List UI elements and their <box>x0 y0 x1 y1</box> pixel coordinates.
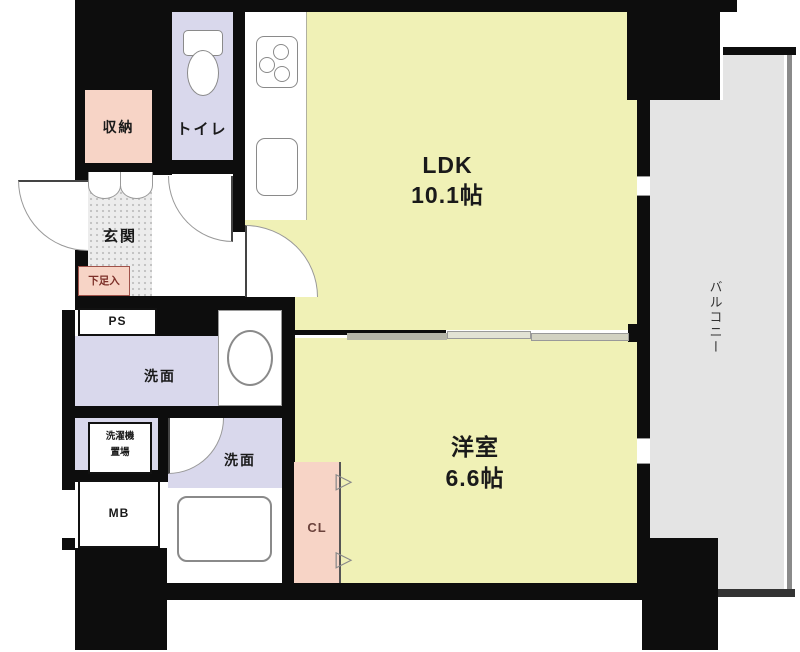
closet-folding-door-icon: ▷ <box>334 546 354 572</box>
wall-right <box>637 12 650 584</box>
western-room-label: 洋室 <box>405 432 545 462</box>
sliding-door-panel <box>447 331 531 339</box>
ldk-size-label: 10.1帖 <box>375 180 520 210</box>
balcony-area-upper <box>723 55 784 100</box>
sliding-door-panel <box>531 333 629 341</box>
window-ldk <box>637 176 650 196</box>
bathtub-icon <box>177 496 272 562</box>
wall-bottomleft-block <box>75 548 167 650</box>
ps-label: PS <box>78 312 157 332</box>
cl-label: CL <box>294 518 340 538</box>
toilet-bowl-icon <box>187 50 219 96</box>
storage-label: 収納 <box>85 117 152 137</box>
entry-door-arc <box>18 180 88 251</box>
mb-opening <box>62 490 75 538</box>
stove-burner-icon <box>274 66 290 82</box>
balcony-rail-bottom <box>718 589 795 597</box>
stove-burner-icon <box>259 57 275 73</box>
storage-door-arc <box>88 172 121 199</box>
balcony-top-wall <box>723 47 796 55</box>
wall-top <box>75 0 737 12</box>
wall-kitchen-left <box>233 12 245 232</box>
western-room-size-label: 6.6帖 <box>405 463 545 493</box>
balcony-rail-right <box>787 55 792 595</box>
washing-machine-label-line2: 置場 <box>89 446 151 460</box>
closet-folding-door-icon: ▷ <box>334 468 354 494</box>
window-western <box>637 438 650 464</box>
ldk-label: LDK <box>375 150 520 180</box>
floorplan: ▷ ▷ LDK 10.1帖 洋室 6.6帖 バルコニー トイレ 玄関 収納 下足… <box>0 0 800 652</box>
entrance-label: 玄関 <box>86 226 154 248</box>
stove-burner-icon <box>273 44 289 60</box>
washing-machine-label-line1: 洗濯機 <box>89 430 151 444</box>
wall-washroom-divider <box>75 406 282 418</box>
sliding-door-panel <box>347 333 447 340</box>
wall-toilet-bottom <box>160 160 245 174</box>
balcony-label: バルコニー <box>701 262 727 372</box>
bath-washroom-label: 洗面 <box>200 450 280 470</box>
kitchen-sink-icon <box>256 138 298 196</box>
wall-bottom <box>167 583 643 600</box>
wall-ps-block <box>157 310 218 336</box>
wall-bottomright-block <box>642 538 718 650</box>
washroom-label: 洗面 <box>120 366 200 386</box>
toilet-label: トイレ <box>170 120 234 140</box>
mb-label: MB <box>78 504 160 524</box>
storage-door-arc <box>120 172 153 199</box>
shoe-cabinet-label: 下足入 <box>78 272 130 290</box>
washbasin-icon <box>227 330 273 386</box>
